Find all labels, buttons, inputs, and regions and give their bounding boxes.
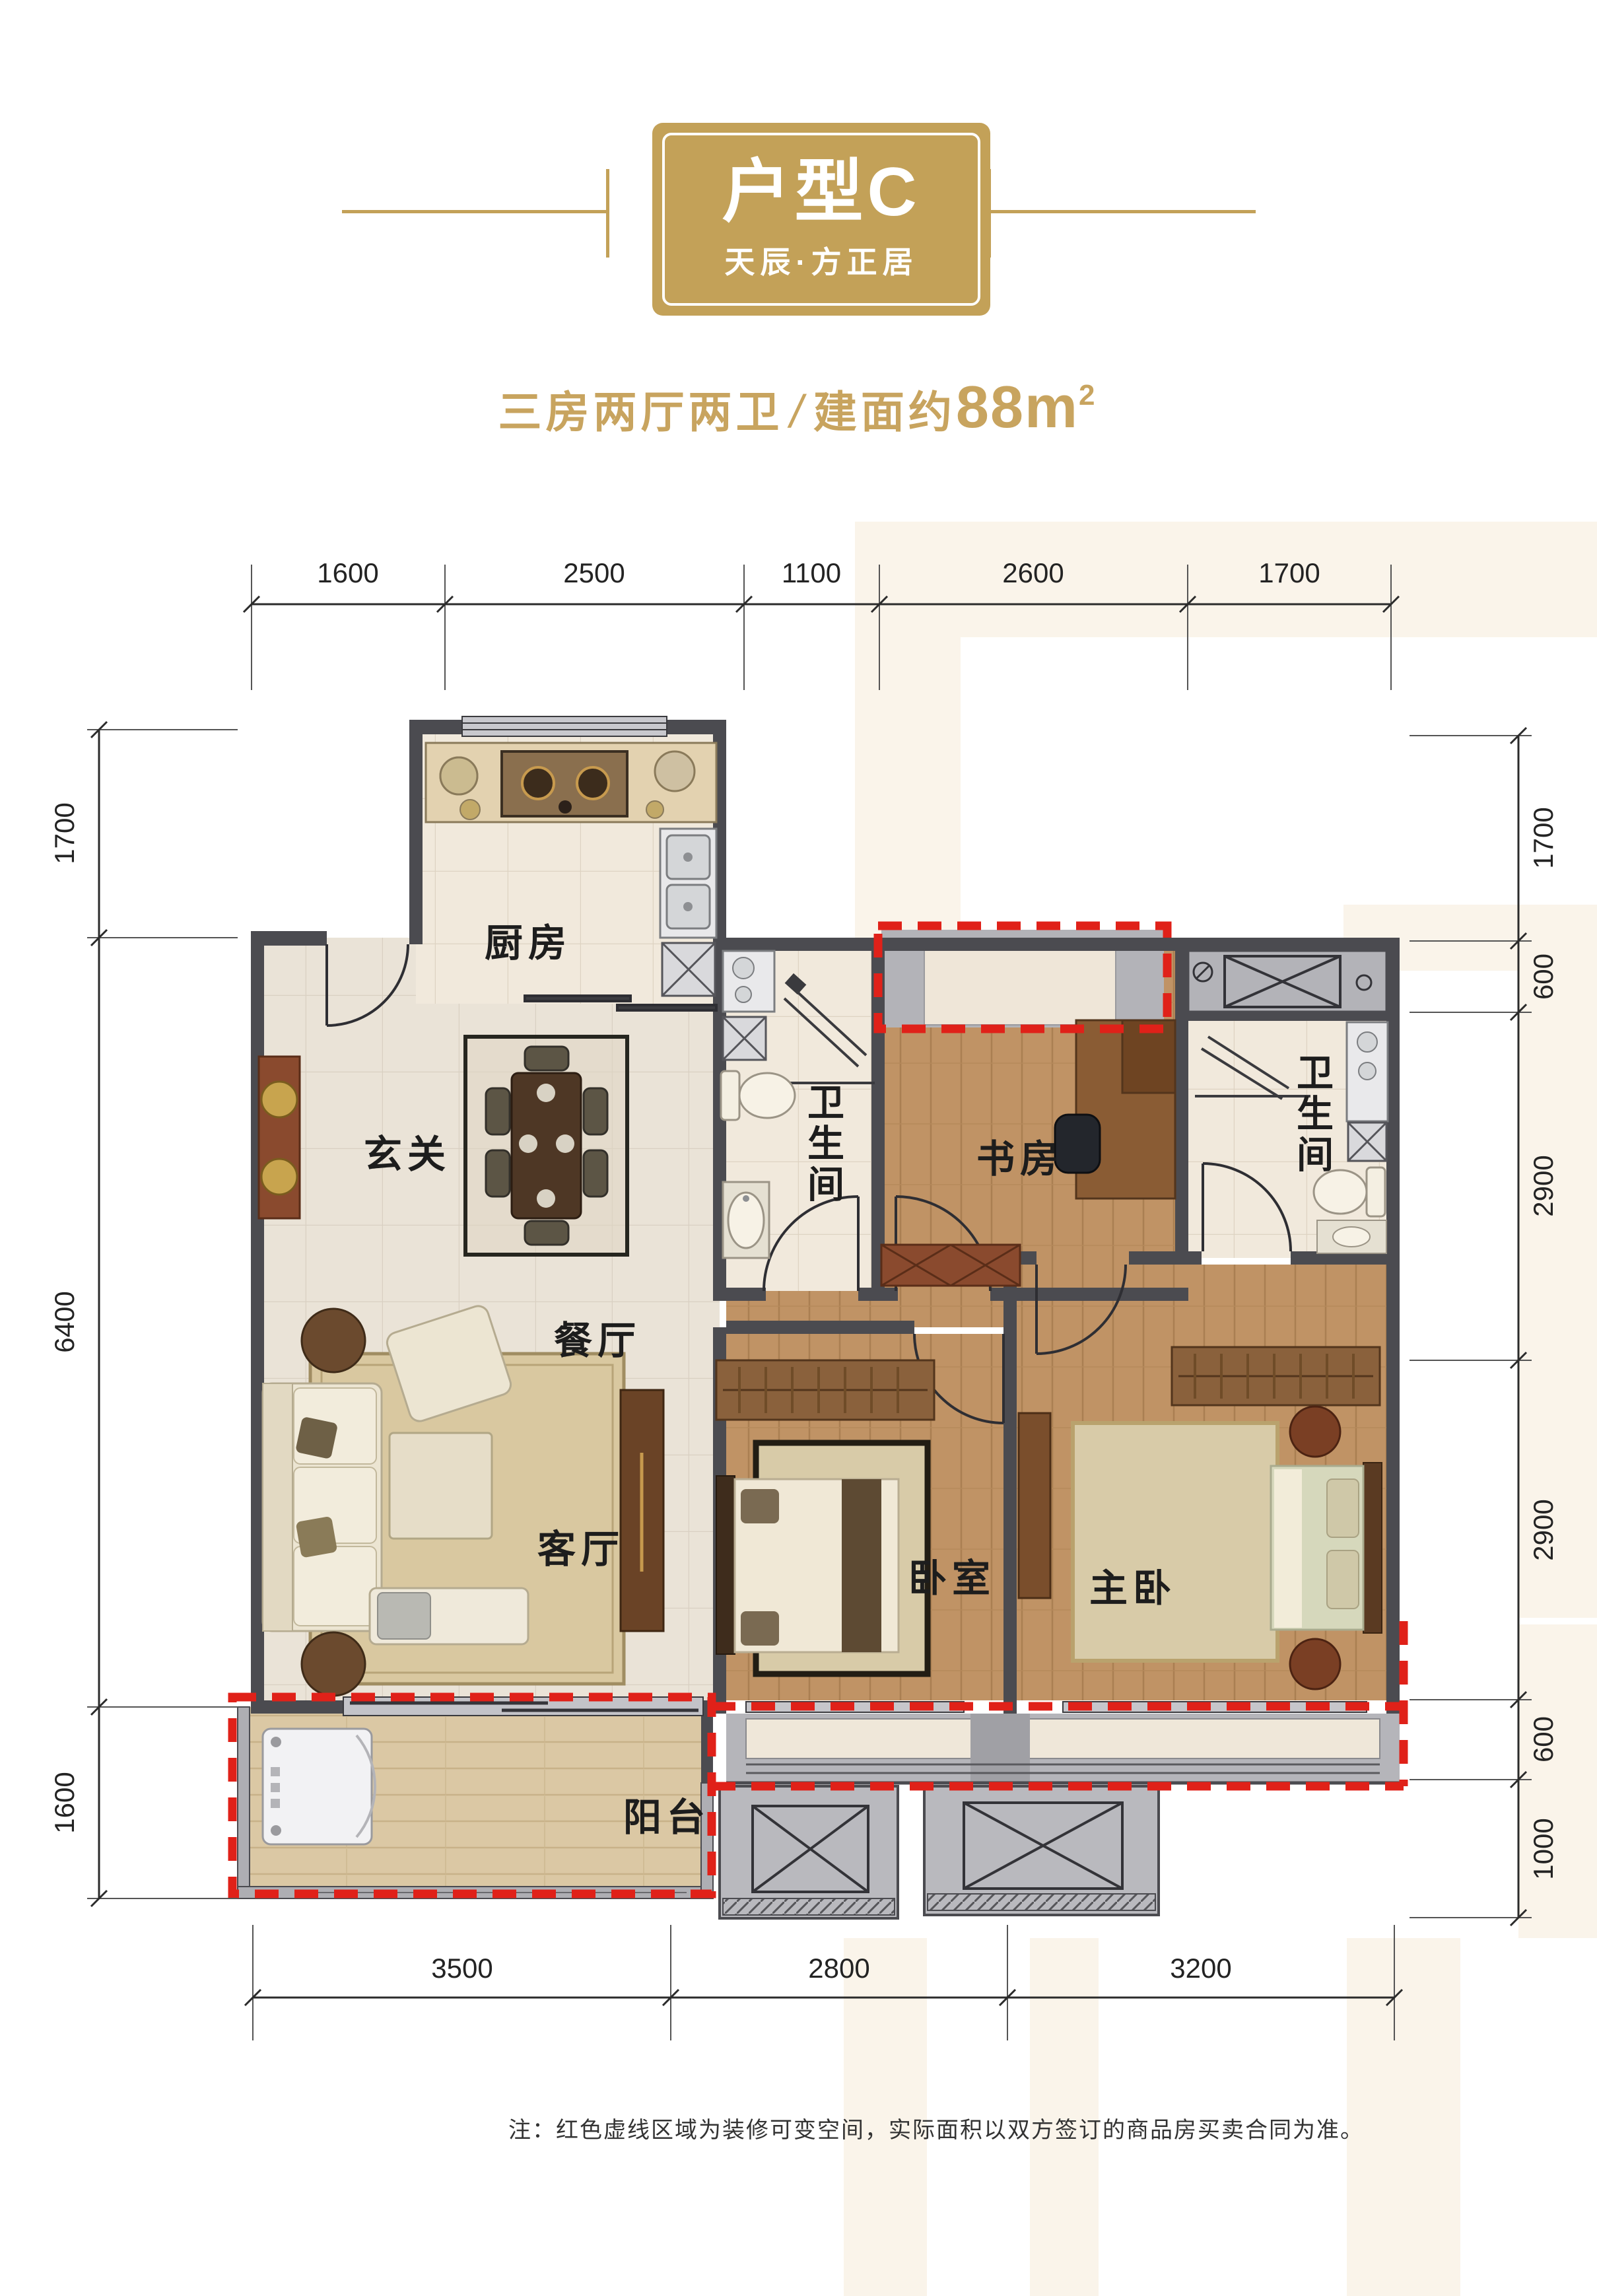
nightstand: [1290, 1639, 1340, 1689]
room-label-bath1: 卫生间: [803, 1083, 844, 1206]
side-table: [302, 1632, 365, 1696]
unit-tagline: 三房两厅两卫/建面约88m2: [0, 374, 1597, 442]
tagline-area-value: 88m: [956, 374, 1079, 440]
dim-bottom-2: 2800: [808, 1953, 869, 1984]
dim-left-2: 6400: [49, 1291, 80, 1352]
side-table: [302, 1309, 365, 1372]
disclaimer-note: 注：红色虚线区域为装修可变空间，实际面积以双方签订的商品房买卖合同为准。: [508, 2112, 1364, 2144]
tagline-slash: /: [783, 386, 813, 437]
bedroom-furniture: [716, 1360, 934, 1674]
dresser: [1019, 1413, 1050, 1598]
header-decor-tick-left: [606, 169, 609, 258]
kitchen-window: [462, 716, 667, 736]
bed-double: [716, 1476, 899, 1654]
master-rug: [1073, 1423, 1277, 1661]
dim-right-2: 600: [1528, 954, 1559, 1000]
unit-type-badge: 户型C 天辰·方正居: [652, 123, 990, 316]
room-label-entry: 玄关: [364, 1133, 451, 1176]
kitchen-counter: [426, 743, 716, 822]
room-label-living: 客厅: [537, 1528, 625, 1571]
dim-top-5: 1700: [1258, 557, 1320, 588]
dim-left-1: 1700: [49, 802, 80, 864]
dim-right-6: 1000: [1528, 1818, 1559, 1879]
unit-type-title: 户型C: [722, 157, 920, 228]
dim-top-4: 2600: [1002, 557, 1064, 588]
ac-platforms: [720, 1786, 1159, 1918]
project-name: 天辰·方正居: [724, 238, 918, 282]
sink-icon: [723, 1182, 769, 1258]
room-label-dining: 餐厅: [554, 1319, 641, 1362]
header-decor-line-right: [990, 210, 1256, 213]
room-label-bath2: 卫生间: [1292, 1053, 1334, 1176]
entry-console-table: [259, 1057, 300, 1218]
room-label-bedroom: 卧室: [908, 1557, 996, 1600]
dim-right-4: 2900: [1528, 1499, 1559, 1560]
tagline-area-sup: 2: [1079, 379, 1099, 411]
tagline-rooms: 三房两厅两卫: [498, 388, 783, 436]
dim-top-3: 1100: [782, 557, 841, 588]
nightstand: [1290, 1407, 1340, 1457]
coffee-table: [390, 1433, 492, 1539]
bookshelf: [881, 1245, 1020, 1286]
kitchen-fridge-icon: [662, 943, 715, 996]
dim-top-2: 2500: [563, 557, 625, 588]
dim-top-1: 1600: [317, 557, 378, 588]
washing-machine-icon: [263, 1729, 375, 1844]
tagline-area-prefix: 建面约: [813, 388, 956, 436]
sofa: [263, 1383, 382, 1631]
dim-left-3: 1600: [49, 1772, 80, 1833]
pot-icon: [655, 751, 695, 791]
bed-double: [1271, 1463, 1382, 1633]
room-label-study: 书房: [976, 1138, 1064, 1181]
header-decor-line-left: [342, 210, 607, 213]
room-label-balcony: 阳台: [623, 1796, 710, 1839]
dim-bottom-3: 3200: [1170, 1953, 1231, 1984]
toilet-icon: [721, 1071, 795, 1120]
bay-window-strip: [726, 1702, 1400, 1783]
stove-icon: [502, 751, 627, 816]
dim-right-3: 2900: [1528, 1155, 1559, 1216]
floor-plan-canvas: 厨房 玄关 餐厅 客厅 卫生间 书房 卫生间 卧室 主卧 阳台 1600 250…: [0, 0, 1597, 2296]
dining-set: [465, 1037, 627, 1255]
kitchen-sink-icon: [660, 829, 716, 938]
room-label-master: 主卧: [1089, 1567, 1176, 1610]
dim-bottom-1: 3500: [431, 1953, 493, 1984]
room-label-kitchen: 厨房: [485, 922, 572, 965]
dim-right-5: 600: [1528, 1716, 1559, 1762]
top-right-closet: [1188, 951, 1386, 1012]
dim-right-1: 1700: [1528, 807, 1559, 868]
